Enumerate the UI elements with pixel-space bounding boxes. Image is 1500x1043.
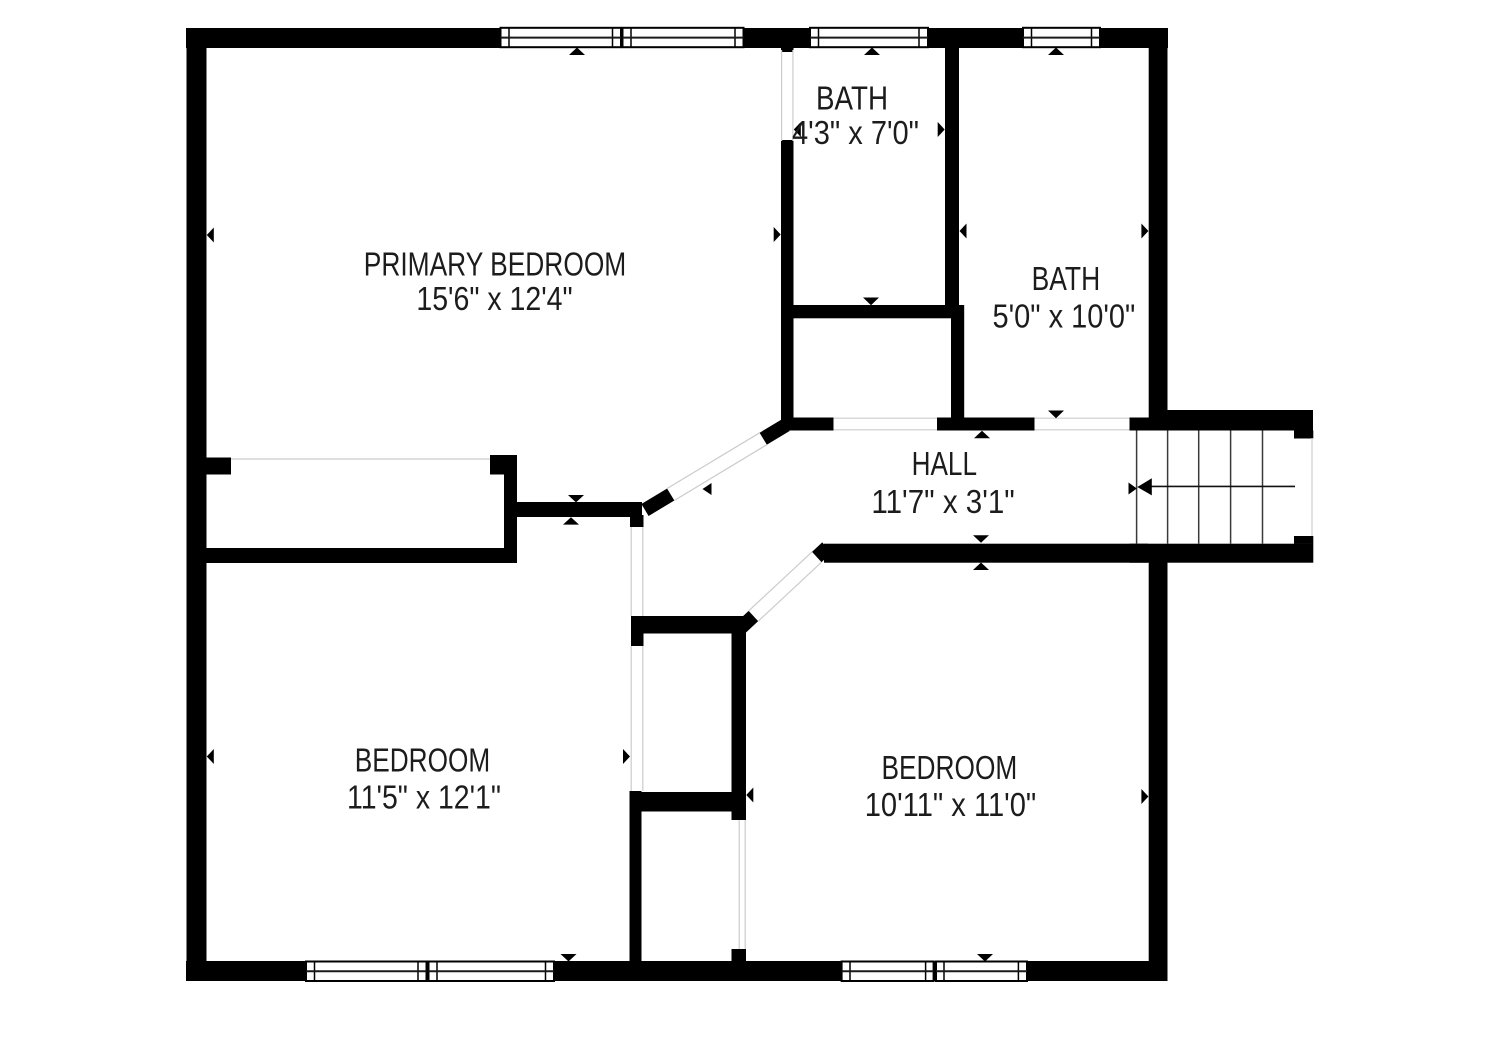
- svg-text:BATH: BATH: [816, 80, 888, 117]
- svg-text:10'11" x 11'0": 10'11" x 11'0": [865, 786, 1037, 823]
- svg-text:4'3" x 7'0": 4'3" x 7'0": [792, 114, 919, 151]
- svg-text:BEDROOM: BEDROOM: [355, 742, 491, 779]
- svg-text:PRIMARY BEDROOM: PRIMARY BEDROOM: [364, 246, 627, 283]
- svg-text:5'0" x 10'0": 5'0" x 10'0": [993, 298, 1136, 335]
- svg-text:11'5" x 12'1": 11'5" x 12'1": [347, 779, 501, 816]
- svg-text:HALL: HALL: [912, 445, 977, 482]
- svg-text:11'7" x 3'1": 11'7" x 3'1": [871, 483, 1014, 520]
- svg-text:BEDROOM: BEDROOM: [882, 749, 1018, 786]
- svg-text:15'6" x 12'4": 15'6" x 12'4": [416, 280, 572, 317]
- svg-text:BATH: BATH: [1032, 260, 1101, 297]
